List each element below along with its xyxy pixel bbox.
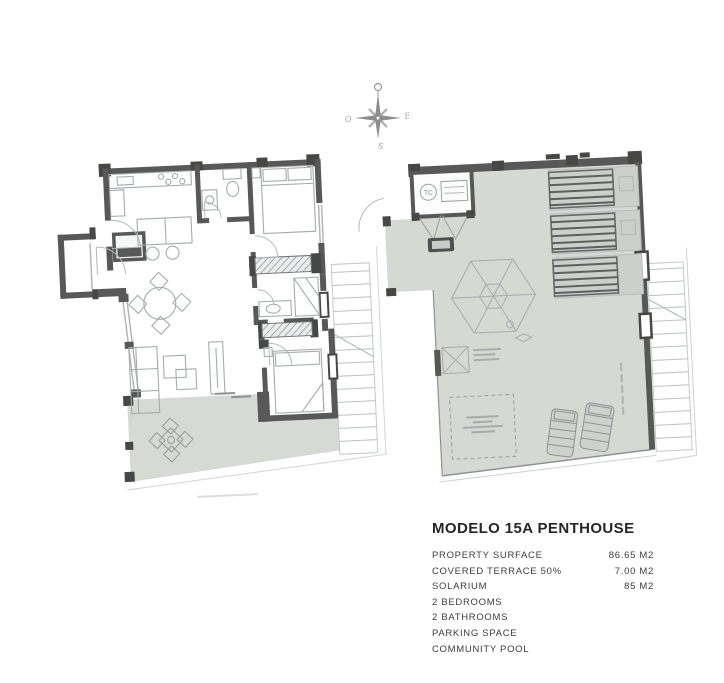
dining-table [127,271,192,336]
spec-label: PARKING SPACE [432,626,517,642]
pergola-panel [548,166,639,210]
spec-label: PROPERTY SURFACE [432,548,543,564]
compass-west-label: O [345,115,352,124]
tv-console [209,342,225,395]
spec-label: COMMUNITY POOL [432,642,529,658]
plan-drawing: O E S [0,0,724,512]
spec-row-bedrooms: 2 BEDROOMS [432,595,654,611]
spec-list: PROPERTY SURFACE 86.65 M2 COVERED TERRAC… [432,548,654,657]
coffee-tables [163,355,197,390]
spec-value: 7.00 M2 [615,564,654,580]
sun-lounger [546,409,578,458]
solarium-roof-plan: TC [356,148,697,486]
compass-south-label: S [378,142,384,151]
bathroom-1-fixtures [201,169,243,211]
kitchen-counter [109,171,193,217]
compass-rose-icon: O E S [345,84,411,152]
compass-east-label: E [403,111,412,121]
master-bed [252,165,316,234]
roof-window-2 [640,314,652,339]
spec-label: 2 BATHROOMS [432,610,508,626]
spec-label: 2 BEDROOMS [432,595,502,611]
pergola-panels [548,166,643,298]
plan-title: MODELO 15A PENTHOUSE [432,520,634,537]
pergola-panel [553,254,644,298]
spec-row-covered-terrace: COVERED TERRACE 50% 7.00 M2 [432,564,654,580]
spec-label: SOLARIUM [432,579,487,595]
bench [428,237,455,252]
bathroom-2-fixtures [258,277,320,318]
closet-hatch-2 [262,321,313,337]
pergola-panel [551,210,642,254]
tc-label: TC [424,189,433,196]
spec-row-parking: PARKING SPACE [432,626,654,642]
spec-row-bathrooms: 2 BATHROOMS [432,610,654,626]
spec-value: 85 M2 [624,579,654,595]
spec-row-property-surface: PROPERTY SURFACE 86.65 M2 [432,548,654,564]
floorplan-sheet: O E S [0,0,724,683]
spec-label: COVERED TERRACE 50% [432,564,562,580]
bedroom-2-bed [264,345,324,414]
apartment-floor-plan [54,152,387,503]
spec-row-solarium: SOLARIUM 85 M2 [432,579,654,595]
spec-value: 86.65 M2 [609,548,654,564]
closet-hatch-1 [255,255,312,274]
landing-door-arc [358,198,386,231]
exterior-staircase [331,263,378,455]
spec-row-pool: COMMUNITY POOL [432,642,654,658]
